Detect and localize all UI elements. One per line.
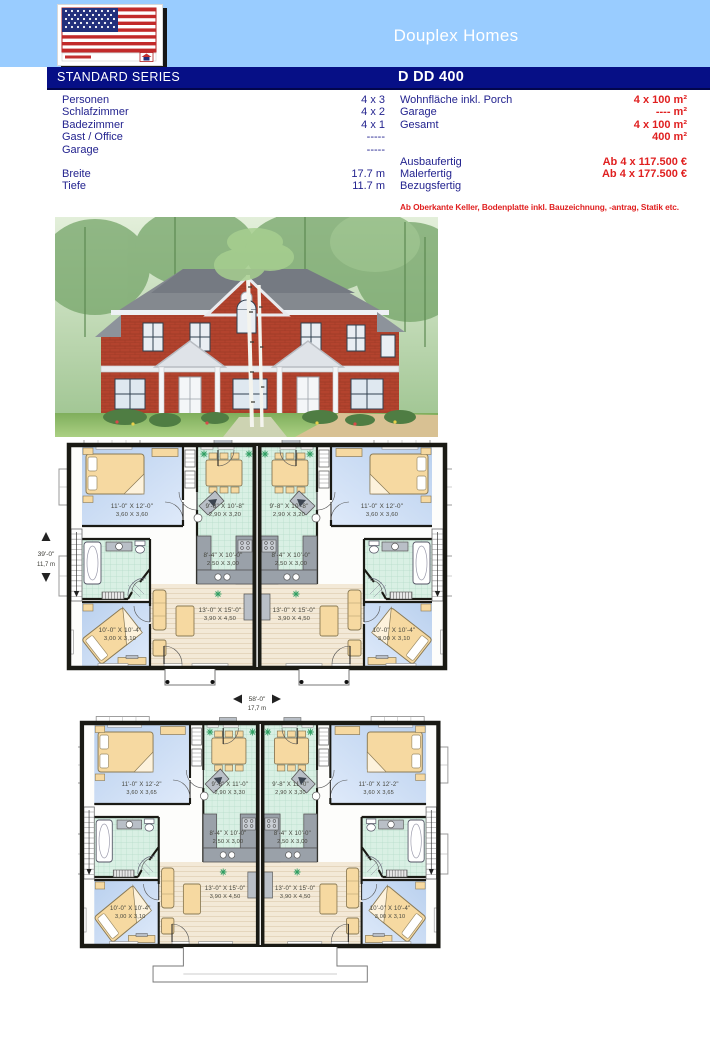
page-title: Douplex Homes [350, 26, 562, 46]
spec-row: Bezugsfertig [400, 180, 687, 192]
room-label: 8'-4" X 10'-0" [274, 830, 311, 837]
series-bar: STANDARD SERIES D DD 400 [47, 67, 710, 90]
room-label: 2,90 X 3,20 [209, 512, 242, 518]
room-label: 3,90 X 4,50 [204, 616, 237, 622]
room-label: 8'-4" X 10'-0" [203, 552, 242, 559]
room-label: 8'-4" X 10'-0" [271, 552, 310, 559]
room-label: 11'-0" X 12'-0" [111, 503, 153, 510]
room-label: 3,60 X 3,65 [363, 790, 394, 796]
floor-plan-1: 11'-0" X 12'-0" 3,60 X 3,60 9'-8" X 10'-… [28, 440, 452, 716]
room-label: 11'-0" X 12'-2" [359, 781, 399, 788]
room-label: 3,00 X 3,10 [104, 636, 137, 642]
floor-plan-2: 11'-0" X 12'-2" 3,60 X 3,65 9'-8" X 11'-… [78, 716, 458, 1006]
room-label: 9'-8" X 11'-0" [272, 781, 309, 788]
spec-row: Gesamt4 x 100 m² [400, 119, 687, 131]
spec-row: Personen4 x 3 [62, 94, 385, 106]
spec-row: Garage----- [62, 144, 385, 156]
room-label: 3,90 X 4,50 [278, 616, 311, 622]
svg-text:17,7 m: 17,7 m [248, 706, 266, 712]
american-flag-logo [57, 4, 163, 66]
room-label: 8'-4" X 10'-0" [209, 830, 246, 837]
room-label: 11'-0" X 12'-2" [122, 781, 162, 788]
svg-text:39'-0": 39'-0" [38, 551, 55, 558]
price-note: Ab Oberkante Keller, Bodenplatte inkl. B… [400, 202, 702, 212]
room-label: 2,50 X 3,00 [277, 839, 308, 845]
spec-row: Gast / Office----- [62, 131, 385, 143]
spec-row: Garage---- m² [400, 106, 687, 118]
spec-row: Tiefe11.7 m [62, 180, 385, 192]
room-label: 13'-0" X 15'-0" [199, 607, 242, 614]
width-dimension: 58'-0" 17,7 m [233, 695, 281, 713]
spec-row: AusbaufertigAb 4 x 117.500 € [400, 156, 687, 168]
room-label: 2,90 X 3,20 [273, 512, 306, 518]
room-label: 3,60 X 3,65 [126, 790, 157, 796]
room-label: 2,50 X 3,00 [213, 839, 244, 845]
room-label: 2,90 X 3,30 [215, 790, 246, 796]
spec-row: Wohnfläche inkl. Porch4 x 100 m² [400, 94, 687, 106]
room-label: 13'-0" X 15'-0" [205, 885, 245, 892]
room-label: 2,90 X 3,30 [275, 790, 306, 796]
spec-row: MalerfertigAb 4 x 177.500 € [400, 168, 687, 180]
spec-table-left: Personen4 x 3 Schlafzimmer4 x 2 Badezimm… [62, 94, 385, 193]
room-label: 3,60 X 3,60 [116, 512, 149, 518]
us-flag-icon [58, 5, 160, 63]
room-label: 10'-0" X 10'-4" [99, 627, 142, 634]
svg-text:58'-0": 58'-0" [249, 696, 266, 703]
spec-row: Schlafzimmer4 x 2 [62, 106, 385, 118]
room-label: 9'-8" X 10'-8" [269, 503, 308, 510]
room-label: 3,90 X 4,50 [210, 894, 241, 900]
room-label: 11'-0" X 12'-0" [361, 503, 403, 510]
room-label: 13'-0" X 15'-0" [275, 885, 315, 892]
house-photo [55, 217, 438, 437]
spec-row: Breite17.7 m [62, 168, 385, 180]
depth-dimension: 39'-0" 11,7 m [37, 532, 55, 582]
room-label: 2,50 X 3,00 [275, 561, 308, 567]
series-label: STANDARD SERIES [57, 70, 180, 84]
room-label: 3,00 X 3,10 [375, 914, 406, 920]
room-label: 13'-0" X 15'-0" [273, 607, 316, 614]
room-label: 10'-0" X 10'-4" [373, 627, 416, 634]
room-label: 3,00 X 3,10 [378, 636, 411, 642]
svg-text:11,7 m: 11,7 m [37, 562, 55, 568]
room-label: 10'-0" X 10'-4" [110, 905, 150, 912]
room-label: 3,00 X 3,10 [115, 914, 146, 920]
room-label: 9'-8" X 10'-8" [205, 503, 244, 510]
room-label: 3,60 X 3,60 [366, 512, 399, 518]
model-code: D DD 400 [398, 69, 464, 85]
brochure-page: Douplex Homes [0, 0, 710, 1039]
room-label: 2,50 X 3,00 [207, 561, 240, 567]
room-label: 3,90 X 4,50 [280, 894, 311, 900]
spec-table-right: Wohnfläche inkl. Porch4 x 100 m² Garage-… [400, 94, 687, 193]
room-label: 10'-0" X 10'-4" [370, 905, 410, 912]
spec-row: Badezimmer4 x 1 [62, 119, 385, 131]
room-label: 9'-8" X 11'-0" [212, 781, 249, 788]
spec-row: 400 m² [400, 131, 687, 143]
house-emblem-icon [140, 53, 153, 62]
